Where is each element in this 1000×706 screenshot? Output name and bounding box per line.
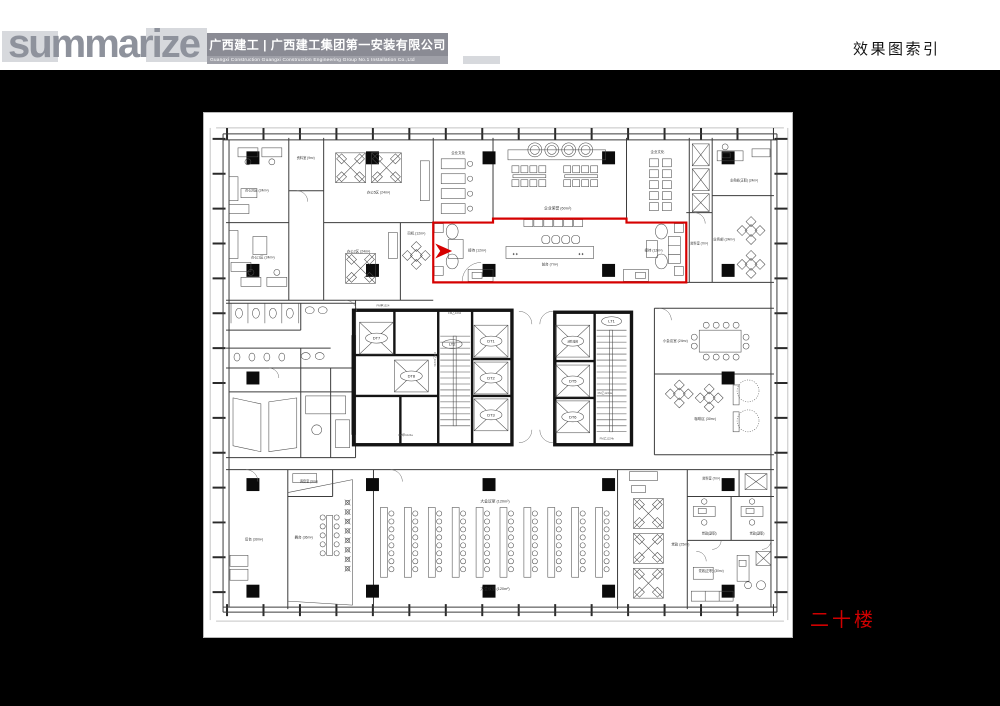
elevator-label-dt8: DT8: [408, 373, 416, 378]
floor-plan-sheet: DT7 DT8 DT1 DT2 DT3 LT2 消防电梯 DT5 DT6 LT1: [203, 112, 793, 638]
stair-label-lt1: LT1: [608, 319, 615, 324]
room-label-front-desk: 前台 (7m²): [542, 261, 558, 266]
elevator-label-dt1: DT1: [487, 339, 495, 344]
room-label-deputy1: 党政(副职): [702, 530, 717, 535]
room-label-office2: 办公2区 (24m²): [347, 248, 371, 253]
elevator-label-dt2: DT2: [487, 375, 495, 380]
door-code-3: FM乙1024b: [433, 352, 437, 367]
room-label-conference-bottom: 大会议室 (120m²): [480, 586, 510, 591]
door-code-1: FM甲1524: [376, 303, 389, 307]
stair-label-lt2: LT2: [449, 342, 456, 347]
room-label-chief: 党政(正职) (30m²): [699, 568, 724, 573]
room-label-office1: 办公1区 (24m²): [251, 254, 275, 259]
elevator-label-dt6: DT6: [569, 414, 577, 419]
room-label-culture-left: 企业文化: [451, 150, 465, 155]
logo-wordmark: summarize: [8, 24, 199, 64]
room-label-sound: 调音室 (9m²): [300, 479, 318, 484]
elevator-label-dt3: DT3: [487, 412, 495, 417]
room-label-office5: 办公5区 (24m²): [367, 190, 391, 195]
elevator-label-fire: 消防电梯: [567, 340, 578, 344]
furniture-offices-bottom-right: [629, 472, 770, 602]
room-label-archive-bottom: 资料室 (7m²): [702, 476, 720, 481]
room-label-small-meeting: 小会议室 (24m²): [663, 338, 688, 343]
room-label-reception-left: 接待 (12m²): [468, 247, 486, 252]
room-label-party: 党政 (25m²): [671, 541, 689, 546]
door-code-5: FM乙1224a: [598, 391, 613, 395]
floor-plan: DT7 DT8 DT1 DT2 DT3 LT2 消防电梯 DT5 DT6 LT1: [204, 113, 792, 637]
page-title: 效果图索引: [853, 38, 941, 59]
front-desk-marks-left: ✦✦: [512, 252, 519, 256]
slide: summarize 广西建工 | 广西建工集团第一安装有限公司 Guangxi …: [0, 0, 1000, 706]
company-name-cn: 广西建工 | 广西建工集团第一安装有限公司: [207, 33, 448, 56]
room-label-culture-right: 企业文化: [650, 149, 664, 154]
floor-tag: 二十楼: [810, 605, 876, 632]
room-label-conference-top: 大会议室 (120m²): [480, 499, 510, 504]
room-labels: 办公6区 (24m²) 办公5区 (24m²) 办公1区 (24m²) 办公2区…: [245, 149, 765, 591]
room-label-driver: 司机 (12m²): [407, 231, 425, 236]
company-name-en: Guangxi Construction Guangxi Constructio…: [207, 56, 448, 64]
room-label-deputy2: 党政(副职): [750, 530, 765, 535]
header-accent-block: [463, 56, 500, 64]
core-right: 消防电梯 DT5 DT6 LT1: [555, 312, 632, 444]
core-left: DT7 DT8 DT1 DT2 DT3 LT2: [354, 310, 512, 444]
room-label-business-head: 业务部(正职) (24m²): [730, 178, 758, 183]
furniture-honors-room: [508, 143, 606, 227]
room-label-business: 业务部 (24m²): [713, 237, 735, 242]
furniture-conference-tables: [380, 507, 609, 577]
header-bar: summarize 广西建工 | 广西建工集团第一安装有限公司 Guangxi …: [0, 0, 1000, 70]
elevator-label-dt5: DT5: [569, 378, 577, 383]
room-label-archive-mid: 资料室 (7m²): [690, 240, 708, 245]
door-code-6: FM乙1224b: [600, 437, 615, 441]
room-label-stage: 舞台 (36m²): [295, 534, 313, 539]
door-code-2: FM乙1034: [448, 311, 461, 315]
room-label-honors: 企业荣誉 (60m²): [544, 206, 572, 211]
elevator-label-dt7: DT7: [373, 336, 381, 341]
room-label-coffee: 咖啡区 (30m²): [694, 416, 716, 421]
room-label-archive-top: 资料室 (9m²): [297, 155, 315, 160]
door-code-4: FM甲1024a: [398, 433, 413, 437]
room-label-reception-right: 接待 (12m²): [644, 247, 662, 252]
front-desk-marks-right: ✦✦: [578, 252, 585, 256]
room-label-backstage: 后台 (30m²): [245, 536, 263, 541]
highlight-arrow-icon: [435, 244, 452, 259]
room-label-office6: 办公6区 (24m²): [245, 188, 269, 193]
